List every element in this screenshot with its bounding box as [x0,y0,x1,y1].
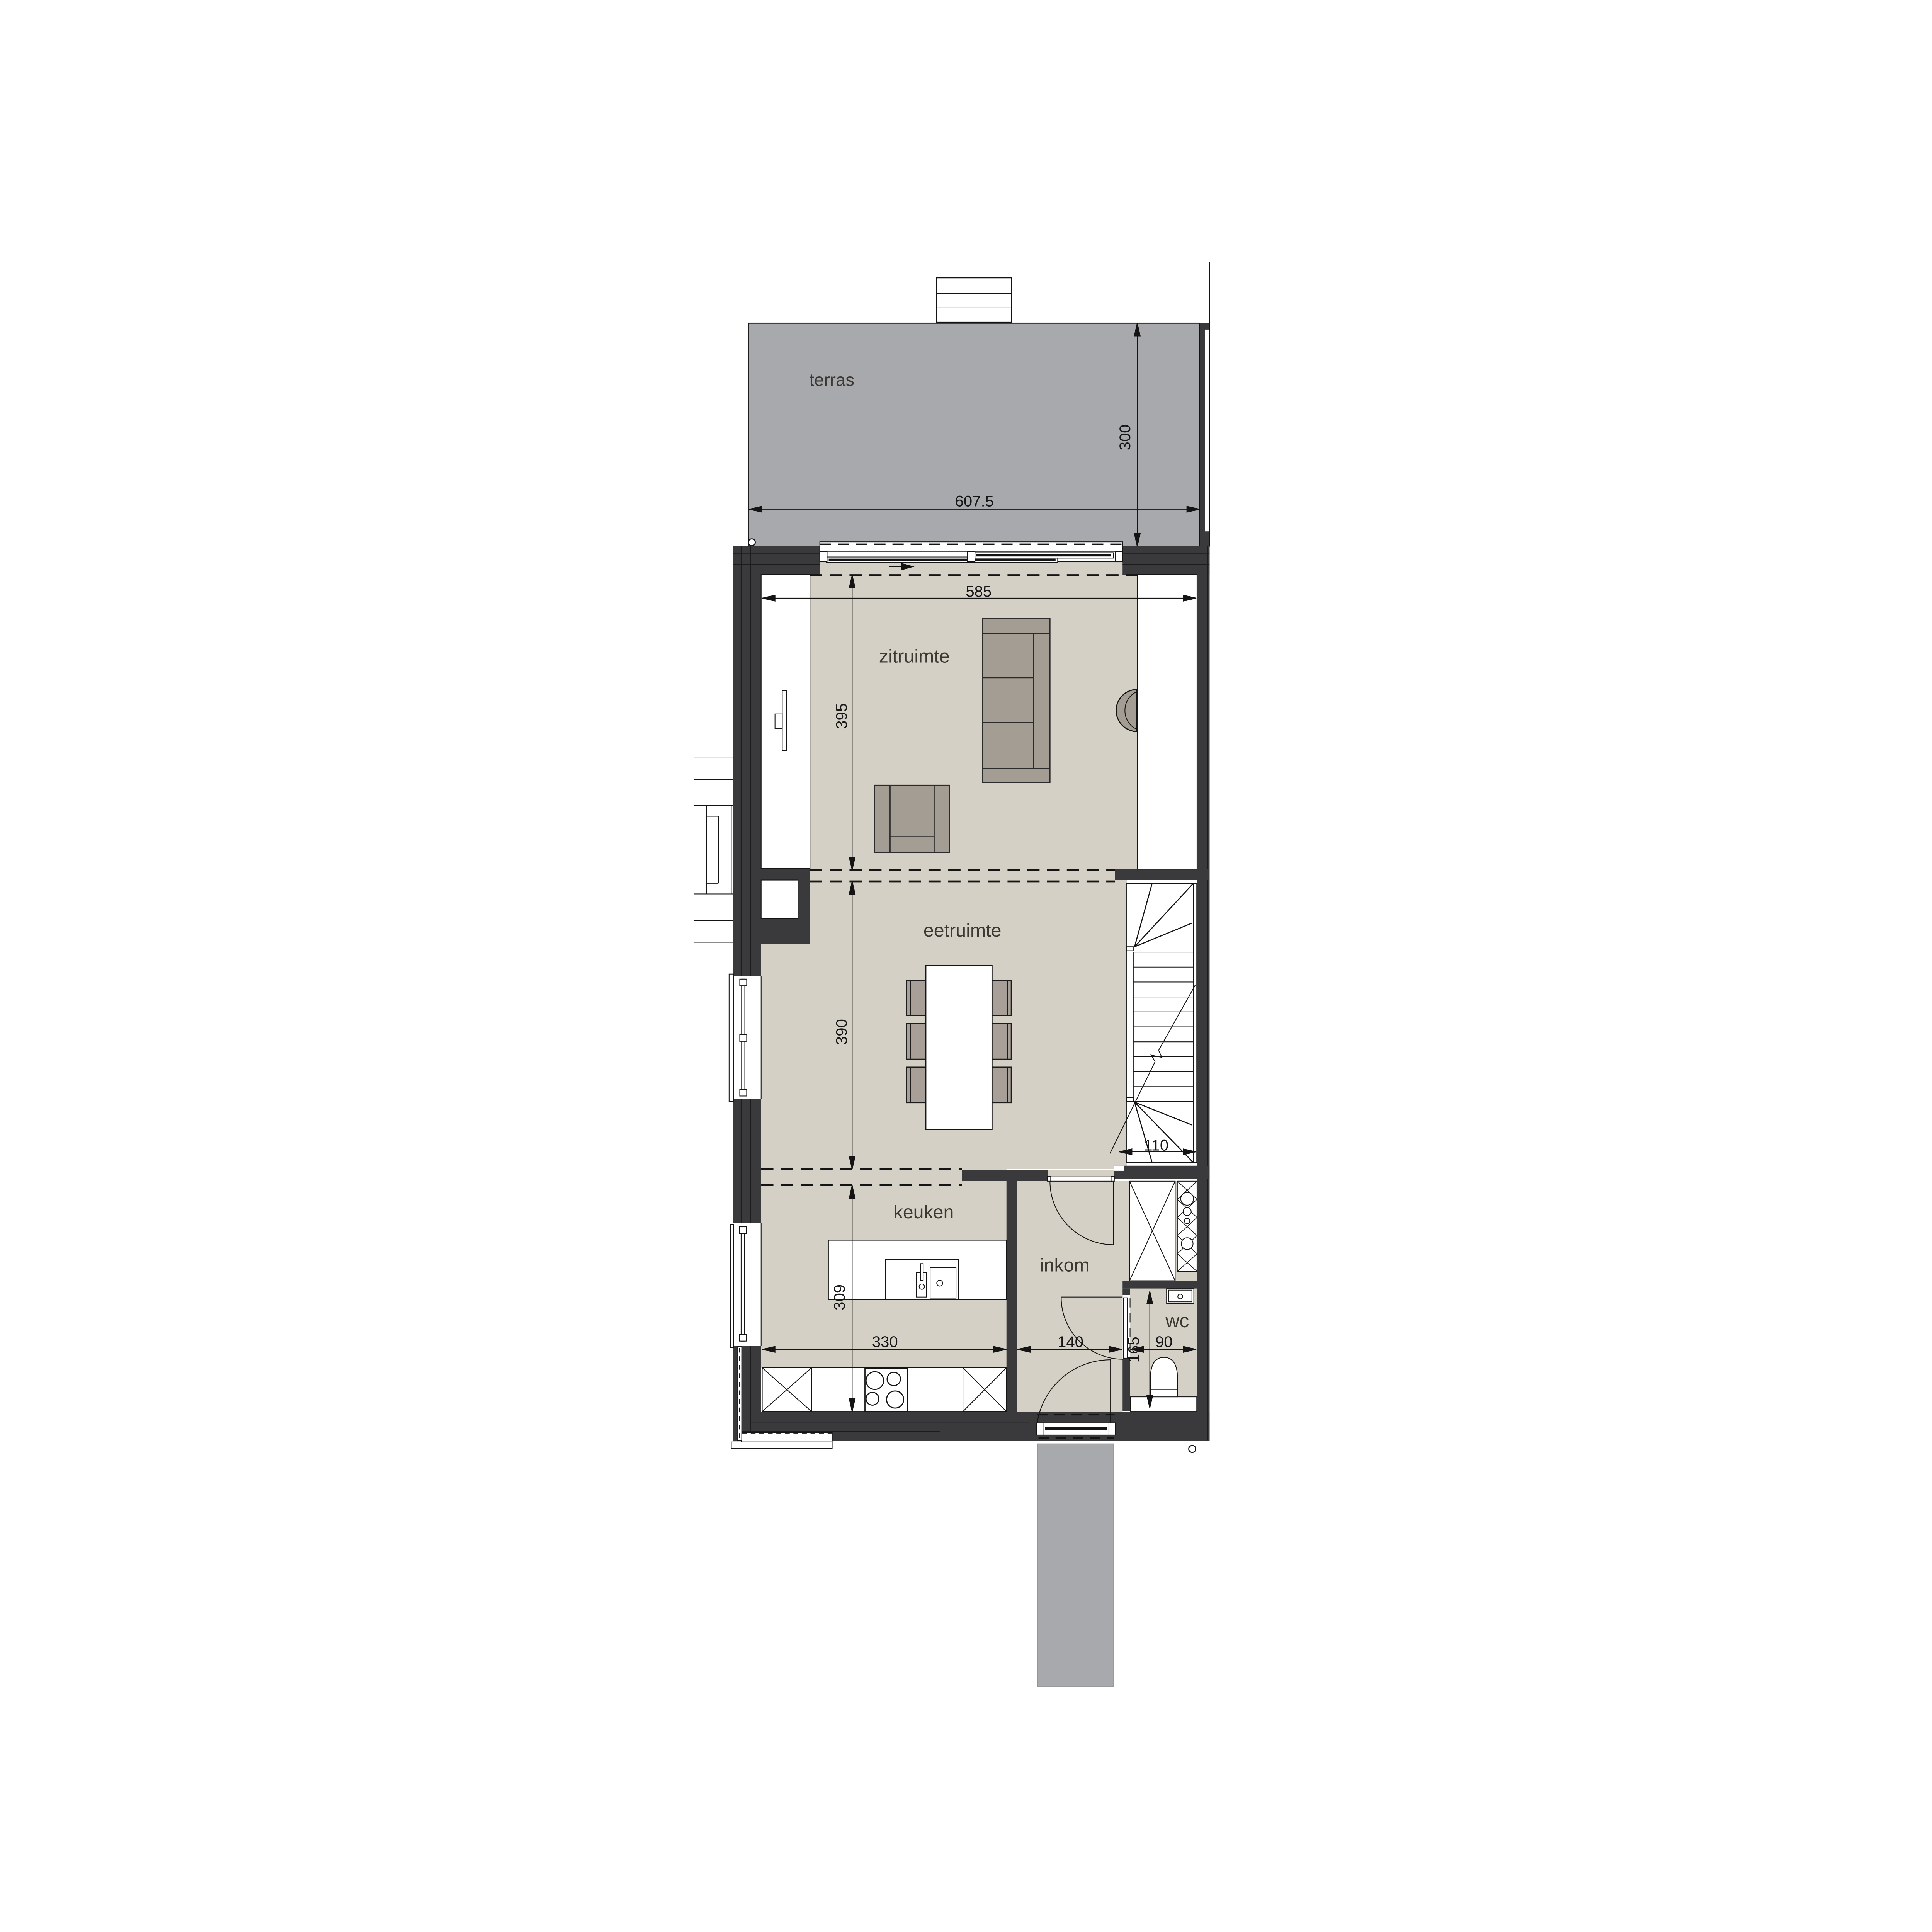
svg-text:zitruimte: zitruimte [879,646,950,667]
svg-text:395: 395 [833,703,850,729]
svg-text:300: 300 [1117,425,1134,451]
svg-text:terras: terras [810,370,855,390]
svg-text:309: 309 [831,1284,848,1310]
svg-text:607.5: 607.5 [955,493,994,510]
svg-text:165: 165 [1125,1337,1142,1362]
svg-text:330: 330 [872,1333,898,1350]
svg-text:390: 390 [833,1019,850,1045]
svg-text:wc: wc [1165,1310,1189,1332]
svg-text:140: 140 [1058,1333,1083,1350]
svg-text:110: 110 [1144,1137,1168,1154]
svg-text:inkom: inkom [1040,1255,1090,1276]
svg-text:eetruimte: eetruimte [923,920,1002,941]
svg-text:90: 90 [1155,1333,1173,1350]
svg-text:585: 585 [966,583,992,600]
svg-text:keuken: keuken [894,1202,954,1223]
